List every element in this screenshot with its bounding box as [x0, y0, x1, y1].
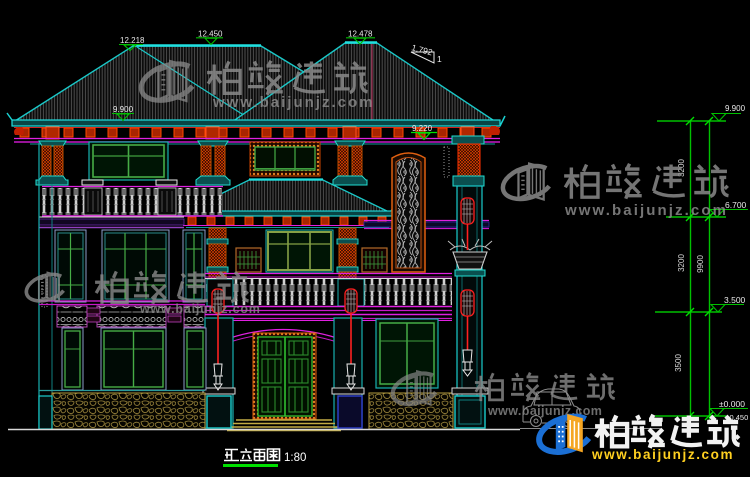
- svg-text:www.baijunjz.com: www.baijunjz.com: [212, 94, 374, 111]
- svg-text:9.220: 9.220: [412, 124, 433, 133]
- svg-text:9.900: 9.900: [113, 105, 134, 114]
- svg-text:3.500: 3.500: [724, 295, 746, 305]
- svg-text:9900: 9900: [696, 255, 705, 273]
- svg-text:12.218: 12.218: [120, 36, 145, 45]
- svg-text:www.baijunjz.com: www.baijunjz.com: [591, 447, 734, 462]
- svg-text:www.baijunjz.com: www.baijunjz.com: [139, 302, 261, 316]
- svg-text:9.900: 9.900: [725, 104, 746, 113]
- svg-text:12.450: 12.450: [198, 30, 223, 39]
- svg-text:6.700: 6.700: [725, 200, 747, 210]
- svg-text:3500: 3500: [674, 354, 683, 372]
- svg-text:±0.000: ±0.000: [719, 399, 745, 409]
- svg-text:3200: 3200: [677, 254, 686, 272]
- svg-text:1:80: 1:80: [284, 452, 306, 464]
- svg-text:www.baijunjz.com: www.baijunjz.com: [564, 202, 728, 219]
- svg-text:1: 1: [437, 54, 442, 64]
- svg-text:12.478: 12.478: [348, 30, 373, 39]
